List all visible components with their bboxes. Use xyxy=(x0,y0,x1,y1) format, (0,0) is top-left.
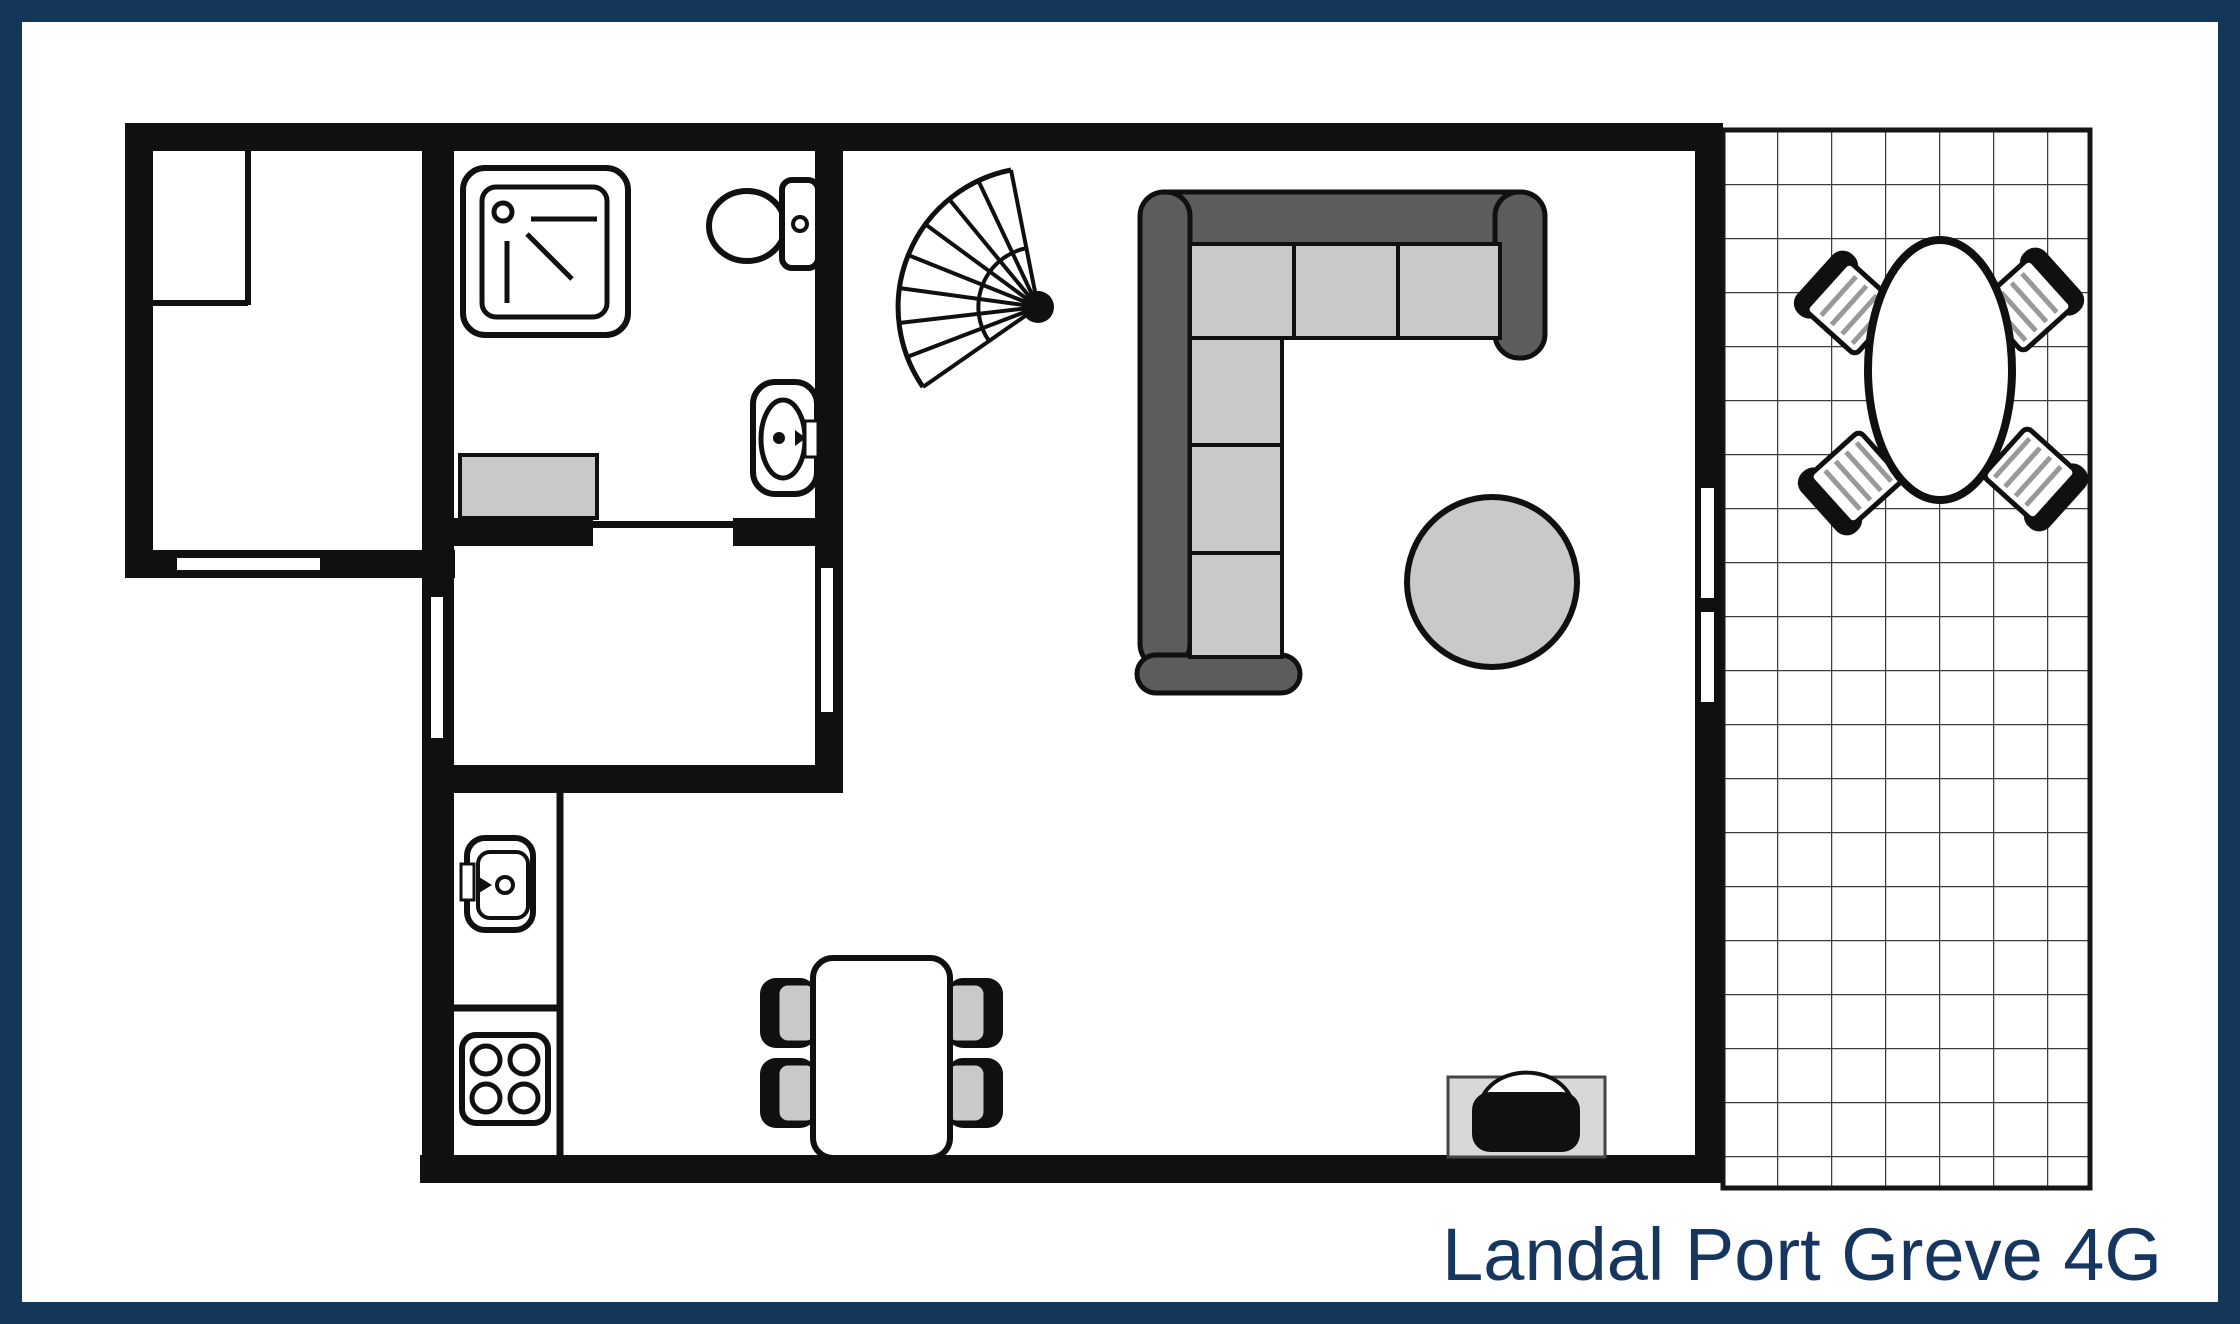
terrace xyxy=(1723,130,2094,1188)
wall-bedroom-bottom xyxy=(422,765,843,793)
side-table-icon xyxy=(1407,497,1577,667)
window-slit xyxy=(431,597,443,738)
floorplan-image: Landal Port Greve 4G xyxy=(0,0,2240,1324)
floorplan-svg: Landal Port Greve 4G xyxy=(0,0,2240,1324)
door-leaf-line xyxy=(593,521,733,528)
stove-icon xyxy=(462,1035,548,1123)
dining-chair-icon xyxy=(760,1058,816,1128)
shower-icon xyxy=(463,168,628,335)
patio-table-icon xyxy=(1868,240,2012,500)
dining-chair-icon xyxy=(760,978,816,1048)
dining-chair-icon xyxy=(947,978,1003,1048)
window-slit xyxy=(1701,488,1714,598)
bathroom-counter xyxy=(460,455,597,518)
window-slit xyxy=(1701,612,1714,702)
dining-set xyxy=(760,958,1003,1158)
wall-bottom xyxy=(420,1155,1723,1183)
wall-entrance-left xyxy=(125,123,153,578)
dining-table-icon xyxy=(813,958,950,1158)
kitchen-sink-icon xyxy=(461,838,533,930)
window-slit xyxy=(821,568,833,712)
window-slit xyxy=(177,558,320,570)
tv-icon xyxy=(1448,1073,1605,1157)
dining-chair-icon xyxy=(947,1058,1003,1128)
plan-title: Landal Port Greve 4G xyxy=(1442,1213,2162,1296)
washbasin-icon xyxy=(753,382,818,494)
wall-top xyxy=(125,123,1723,151)
